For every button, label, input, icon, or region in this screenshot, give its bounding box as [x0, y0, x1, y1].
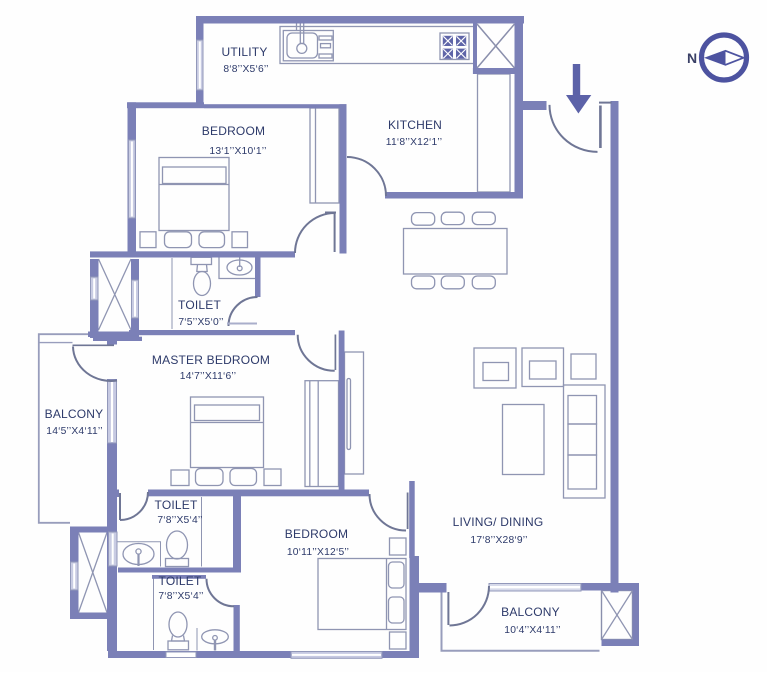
- svg-text:14‘7’’X11‘6’’: 14‘7’’X11‘6’’: [180, 371, 236, 382]
- svg-text:BALCONY: BALCONY: [45, 407, 104, 421]
- svg-text:7‘8’’X5‘4’’: 7‘8’’X5‘4’’: [157, 515, 202, 526]
- svg-text:BEDROOM: BEDROOM: [285, 527, 348, 541]
- svg-text:LIVING/ DINING: LIVING/ DINING: [453, 515, 544, 529]
- svg-text:TOILET: TOILET: [178, 298, 221, 312]
- svg-text:14‘5’’X4‘11’’: 14‘5’’X4‘11’’: [46, 426, 102, 437]
- svg-text:MASTER BEDROOM: MASTER BEDROOM: [152, 353, 270, 367]
- svg-text:UTILITY: UTILITY: [221, 45, 267, 59]
- svg-text:10‘4’’X4‘11’’: 10‘4’’X4‘11’’: [504, 625, 560, 636]
- svg-text:TOILET: TOILET: [159, 574, 202, 588]
- svg-text:17‘8’’X28‘9’’: 17‘8’’X28‘9’’: [470, 535, 527, 546]
- svg-text:13‘1’’X10‘1’’: 13‘1’’X10‘1’’: [209, 146, 266, 157]
- svg-text:KITCHEN: KITCHEN: [388, 118, 442, 132]
- svg-text:8‘8’’X5‘6’’: 8‘8’’X5‘6’’: [223, 64, 268, 75]
- svg-text:BALCONY: BALCONY: [501, 605, 560, 619]
- svg-text:7‘5’’X5‘0’’: 7‘5’’X5‘0’’: [178, 317, 223, 328]
- svg-text:11‘8’’X12‘1’’: 11‘8’’X12‘1’’: [386, 137, 442, 148]
- svg-text:BEDROOM: BEDROOM: [202, 124, 265, 138]
- svg-text:N: N: [687, 50, 697, 66]
- svg-text:7‘8’’X5‘4’’: 7‘8’’X5‘4’’: [158, 591, 203, 602]
- svg-text:TOILET: TOILET: [155, 498, 198, 512]
- svg-text:10‘11’’X12‘5’’: 10‘11’’X12‘5’’: [287, 547, 349, 558]
